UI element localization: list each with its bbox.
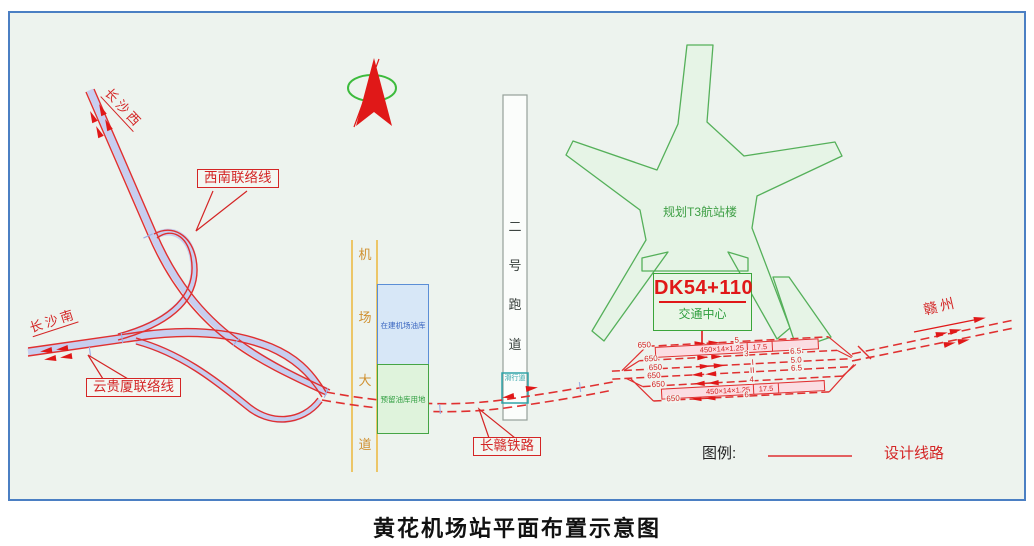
airport-avenue-char-2: 场 [358, 311, 371, 325]
label-changgan-railway: 长赣铁路 [473, 437, 541, 456]
runway-char-1: 二 [508, 220, 521, 234]
label-taxiway: 滑行道 [503, 375, 527, 383]
runway-char-2: 号 [508, 259, 521, 273]
label-runway-2: 二 号 跑 道 [505, 220, 525, 352]
station-tracks [611, 333, 858, 406]
mileage-divider [659, 301, 746, 303]
railway-solid-lines [28, 89, 330, 422]
oil-depot-reserved: 预留油库用地 [377, 364, 429, 434]
page-title: 黄花机场站平面布置示意图 [0, 511, 1034, 543]
label-transport-center: 交通中心 [654, 305, 751, 322]
label-airport-avenue: 机 场 大 道 [356, 248, 374, 452]
label-yunguixia-link: 云贵厦联络线 [86, 378, 181, 397]
airport-avenue-char-1: 机 [358, 248, 371, 262]
oil-depot-under-construction: 在建机场油库 [377, 284, 429, 366]
page: 长沙西 长沙南 赣州 西南联络线 云贵厦联络线 长赣铁路 机 场 大 道 二 号… [0, 0, 1034, 546]
mileage-label: DK54+110 [654, 277, 751, 300]
legend-design-line-label: 设计线路 [884, 446, 944, 463]
label-terminal-t3: 规划T3航站楼 [640, 206, 760, 219]
transport-center-box: DK54+110 交通中心 [653, 273, 752, 331]
runway-char-4: 道 [508, 338, 521, 352]
track-direction-arrows [687, 340, 726, 402]
airport-avenue-char-4: 道 [358, 438, 371, 452]
label-southwest-link: 西南联络线 [197, 169, 279, 188]
runway-char-3: 跑 [508, 298, 521, 312]
airport-avenue-char-3: 大 [358, 374, 371, 388]
legend-title: 图例: [702, 446, 736, 463]
north-arrow-icon [348, 58, 396, 127]
